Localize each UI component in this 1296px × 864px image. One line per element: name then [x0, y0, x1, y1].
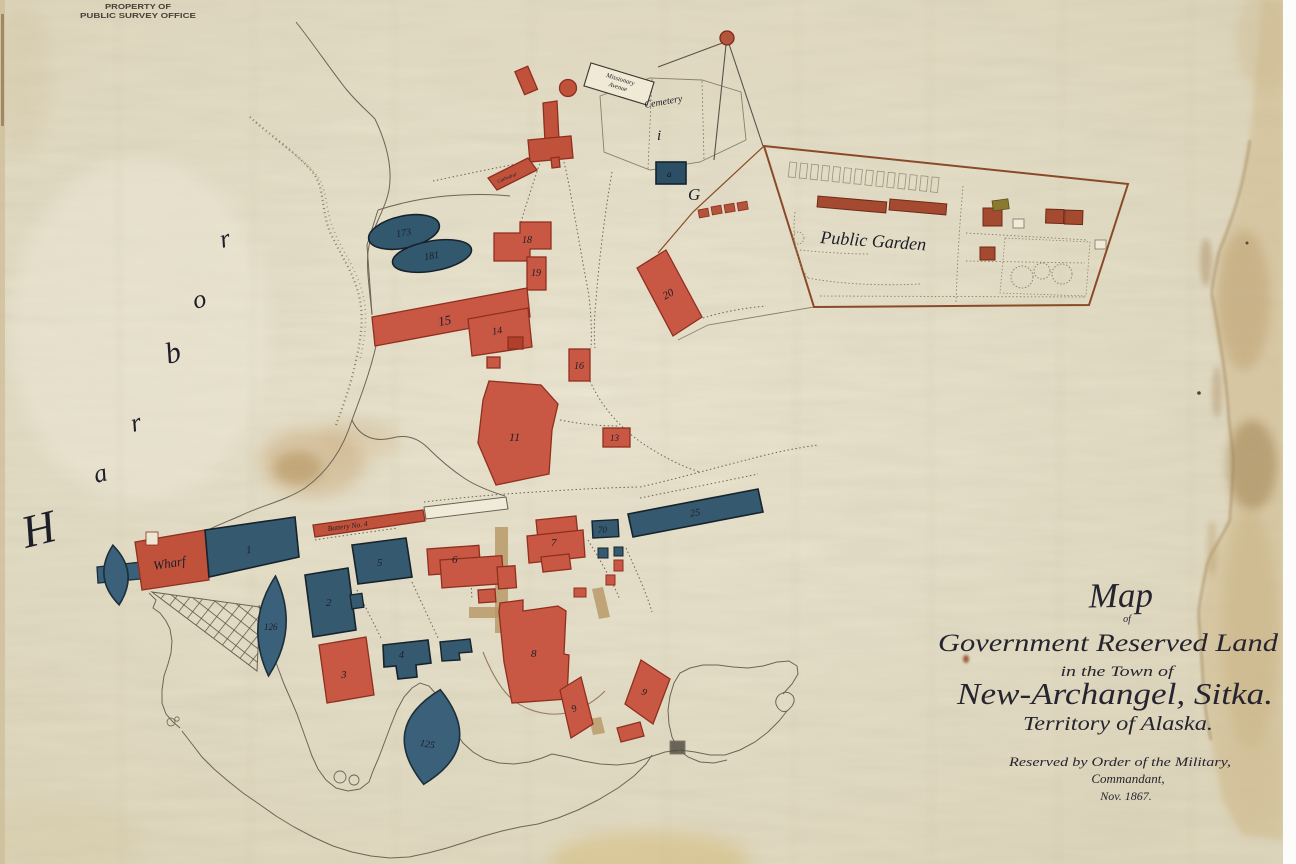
svg-text:7: 7	[551, 537, 557, 549]
svg-text:6: 6	[452, 554, 458, 566]
svg-text:70: 70	[598, 525, 608, 535]
svg-text:Commandant,: Commandant,	[1091, 771, 1164, 786]
svg-text:G: G	[688, 185, 700, 204]
svg-text:a: a	[667, 169, 672, 179]
svg-text:19: 19	[531, 268, 541, 279]
svg-text:i: i	[657, 128, 661, 144]
svg-text:Map: Map	[1087, 575, 1153, 615]
svg-text:2: 2	[326, 597, 332, 609]
svg-text:11: 11	[509, 430, 520, 444]
svg-text:Reserved by Order of the Milit: Reserved by Order of the Military,	[1008, 754, 1231, 769]
svg-text:5: 5	[377, 557, 383, 569]
svg-text:8: 8	[531, 648, 537, 660]
svg-text:126: 126	[264, 622, 278, 632]
svg-text:18: 18	[522, 235, 532, 246]
svg-text:14: 14	[491, 325, 503, 338]
svg-text:4: 4	[399, 650, 404, 661]
svg-text:13: 13	[610, 433, 620, 443]
svg-text:PUBLIC SURVEY OFFICE: PUBLIC SURVEY OFFICE	[80, 13, 196, 20]
svg-text:25: 25	[689, 507, 701, 519]
svg-text:New-Archangel, Sitka.: New-Archangel, Sitka.	[956, 676, 1273, 711]
svg-text:PROPERTY OF: PROPERTY OF	[105, 4, 172, 11]
svg-text:Nov. 1867.: Nov. 1867.	[1099, 789, 1151, 803]
svg-text:Territory of Alaska.: Territory of Alaska.	[1023, 713, 1213, 735]
svg-text:16: 16	[574, 361, 584, 372]
svg-text:3: 3	[340, 669, 347, 681]
svg-text:of: of	[1123, 614, 1132, 625]
svg-text:Government Reserved Land: Government Reserved Land	[938, 630, 1279, 657]
